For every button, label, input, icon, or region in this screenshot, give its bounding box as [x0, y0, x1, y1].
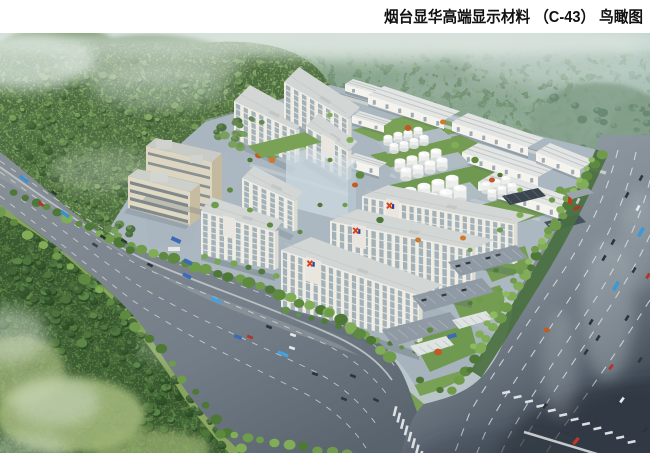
svg-text:烟台显华高端显示材料 （C-43） 鸟瞰图: 烟台显华高端显示材料 （C-43） 鸟瞰图 [384, 7, 643, 26]
